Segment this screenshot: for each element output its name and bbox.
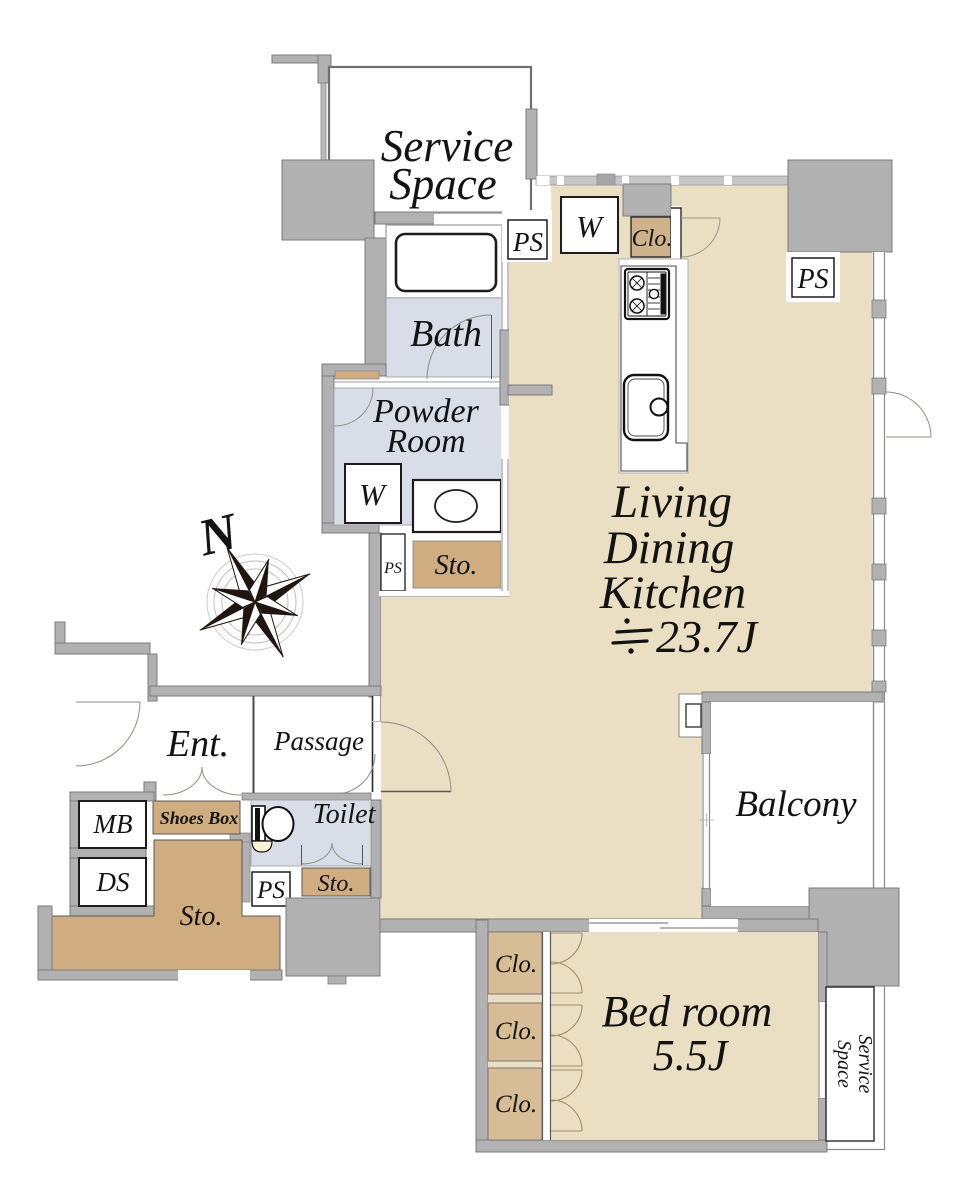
svg-text:Ent.: Ent. [166, 723, 229, 765]
svg-text:Toilet: Toilet [313, 799, 377, 830]
svg-text:PS: PS [796, 264, 828, 295]
svg-text:Service: Service [854, 1035, 876, 1094]
svg-text:Clo.: Clo. [632, 226, 673, 252]
svg-text:Clo.: Clo. [495, 951, 537, 978]
svg-text:PS: PS [383, 560, 402, 577]
svg-text:PS: PS [512, 227, 543, 257]
svg-text:Space: Space [833, 1040, 855, 1088]
svg-text:Room: Room [385, 423, 465, 460]
svg-text:Sto.: Sto. [318, 871, 355, 897]
svg-text:23.7J: 23.7J [656, 611, 760, 662]
svg-text:Clo.: Clo. [495, 1091, 537, 1118]
svg-text:DS: DS [96, 867, 130, 897]
svg-text:Sto.: Sto. [180, 901, 223, 932]
svg-text:Clo.: Clo. [495, 1018, 537, 1045]
svg-text:Balcony: Balcony [735, 784, 857, 825]
svg-text:5.5J: 5.5J [653, 1031, 730, 1080]
svg-text:Space: Space [389, 159, 496, 209]
svg-text:Living: Living [611, 476, 732, 528]
svg-text:PS: PS [256, 877, 285, 904]
svg-text:W: W [576, 209, 605, 244]
svg-text:Bath: Bath [410, 313, 482, 355]
svg-text:Sto.: Sto. [435, 550, 478, 581]
svg-text:Shoes Box: Shoes Box [160, 808, 239, 828]
svg-text:W: W [359, 477, 388, 512]
svg-text:Passage: Passage [273, 726, 364, 756]
svg-text:MB: MB [93, 809, 133, 839]
svg-text:Bed room: Bed room [602, 987, 773, 1036]
